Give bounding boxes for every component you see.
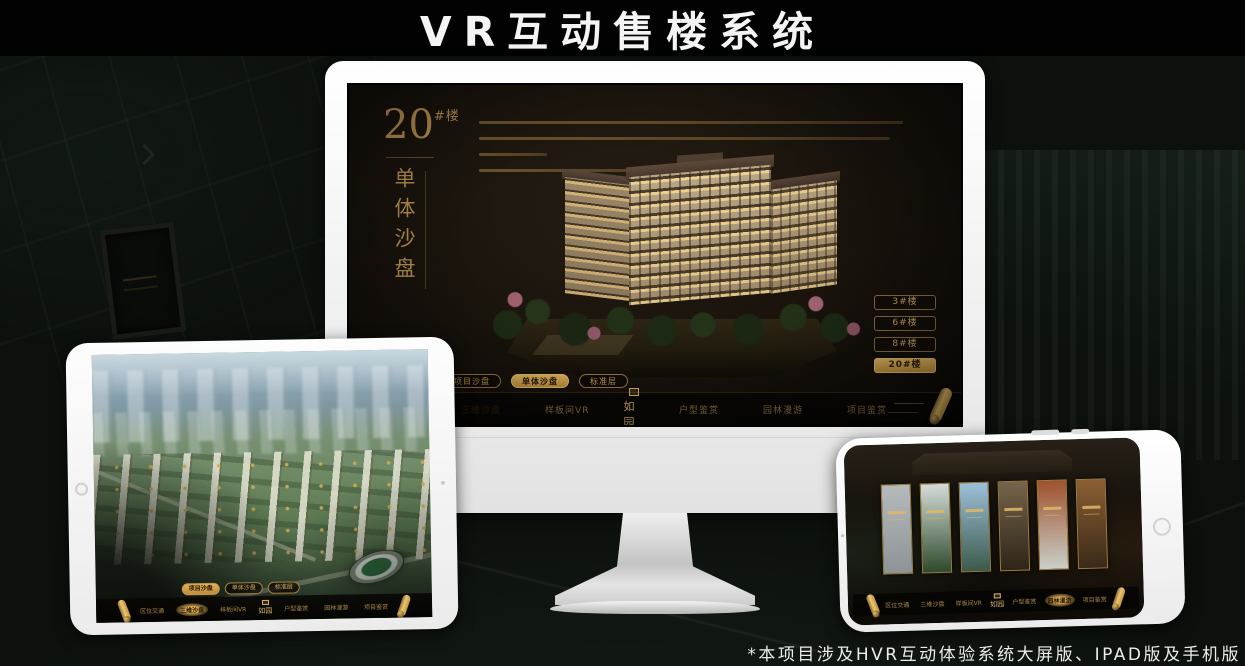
phone-nav-location[interactable]: 区位交通: [882, 597, 912, 611]
gallery-panel-sketch[interactable]: [880, 484, 913, 575]
phone-navbar: 区位交通 三维沙盘 样板间VR 如园 户型鉴赏 园林漫游 项目鉴赏: [853, 586, 1140, 616]
bottom-footnote: *本项目涉及HVR互动体验系统大屏版、IPAD版及手机版: [747, 640, 1241, 665]
scroll-panel-gallery: [845, 477, 1143, 575]
tower-button-3[interactable]: 3#楼: [874, 295, 936, 310]
sandbox-subtabs: 项目沙盘 单体沙盘 标准层: [443, 374, 628, 388]
heading-vertical-rule: [425, 171, 426, 289]
tower-button-20[interactable]: 20#楼: [874, 358, 936, 373]
brand-logo: 如园: [623, 388, 645, 425]
building-heading: 20#楼: [383, 105, 460, 145]
nav-item-model-room-vr[interactable]: 样板间VR: [535, 399, 599, 420]
stage: VR互动售楼系统 20#楼 单体沙盘: [0, 0, 1245, 666]
faint-picture-frame: [100, 222, 187, 340]
phone-camera-dot: [841, 534, 844, 537]
tablet-nav-model-room-vr[interactable]: 样板间VR: [216, 602, 251, 616]
subtab-standard-floor[interactable]: 标准层: [579, 374, 628, 388]
scroll-handle-icon[interactable]: [116, 599, 131, 622]
logo-seal-icon: [262, 600, 269, 605]
scroll-handle-icon[interactable]: [928, 386, 954, 424]
tablet-nav-location[interactable]: 区位交通: [136, 603, 168, 617]
scroll-trail-lines: [887, 403, 924, 413]
tablet-nav-garden-tour[interactable]: 园林漫游: [320, 600, 352, 614]
tower-button-6[interactable]: 6#楼: [874, 316, 936, 331]
page-title-bar: VR互动售楼系统: [0, 0, 1245, 56]
tablet-nav-floorplans[interactable]: 户型鉴赏: [280, 601, 312, 615]
phone-nav-model-room-vr[interactable]: 样板间VR: [952, 595, 985, 609]
gallery-panel-sky-tower[interactable]: [958, 482, 991, 573]
phone-screen: 区位交通 三维沙盘 样板间VR 如园 户型鉴赏 园林漫游 项目鉴赏: [844, 437, 1145, 625]
tablet-screen: 项目沙盘 单体沙盘 标准层 区位交通 三维沙盘 样板间VR 如园 户型鉴赏 园林…: [92, 349, 433, 623]
scroll-handle-icon[interactable]: [397, 594, 412, 617]
gallery-panel-facade[interactable]: [997, 481, 1030, 572]
building-3d-model[interactable]: [499, 163, 845, 377]
tower-button-8[interactable]: 8#楼: [874, 337, 936, 352]
phone-volume-button: [1031, 430, 1059, 436]
page-title: VR互动售楼系统: [420, 0, 825, 58]
nav-item-floorplans[interactable]: 户型鉴赏: [669, 399, 729, 420]
scroll-handle-icon[interactable]: [1112, 586, 1127, 609]
gallery-panel-autumn[interactable]: [1036, 479, 1069, 570]
tablet-subtab-project-sandbox[interactable]: 项目沙盘: [182, 583, 220, 596]
interior-pergola-silhouette: [912, 449, 1073, 475]
logo-seal-icon: [629, 388, 639, 396]
tablet-subtab-single-sandbox[interactable]: 单体沙盘: [225, 582, 263, 595]
nav-item-project-gallery[interactable]: 项目鉴赏: [837, 399, 897, 420]
subtab-single-sandbox[interactable]: 单体沙盘: [511, 374, 569, 388]
tablet-device: 项目沙盘 单体沙盘 标准层 区位交通 三维沙盘 样板间VR 如园 户型鉴赏 园林…: [65, 337, 458, 636]
nav-item-garden-tour[interactable]: 园林漫游: [753, 399, 813, 420]
tablet-home-button[interactable]: [75, 483, 88, 496]
faint-building-silhouette: [980, 150, 1245, 460]
tablet-nav-3d-sandbox[interactable]: 三维沙盘: [176, 602, 208, 616]
monitor-base: [550, 601, 760, 614]
tablet-nav-project-gallery[interactable]: 项目鉴赏: [360, 599, 392, 613]
brand-logo: 如园: [990, 593, 1004, 609]
phone-device: 区位交通 三维沙盘 样板间VR 如园 户型鉴赏 园林漫游 项目鉴赏: [835, 429, 1185, 633]
heading-rule: [386, 157, 434, 158]
phone-nav-project-gallery[interactable]: 项目鉴赏: [1080, 592, 1110, 606]
gallery-panel-courtyard[interactable]: [919, 483, 952, 574]
phone-nav-floorplans[interactable]: 户型鉴赏: [1009, 594, 1039, 608]
tablet-subtabs: 项目沙盘 单体沙盘 标准层: [182, 581, 300, 595]
phone-nav-garden-tour[interactable]: 园林漫游: [1044, 593, 1074, 607]
tablet-camera-dot: [441, 481, 445, 485]
tablet-subtab-standard-floor[interactable]: 标准层: [268, 581, 300, 594]
monitor-stand: [555, 513, 755, 605]
phone-side-button: [1071, 429, 1089, 435]
gallery-panel-interior[interactable]: [1075, 478, 1108, 569]
scroll-handle-icon[interactable]: [865, 593, 881, 616]
brand-logo: 如园: [258, 600, 272, 616]
logo-seal-icon: [993, 593, 1000, 598]
model-building: [565, 163, 847, 313]
nav-item-3d-sandbox[interactable]: 三维沙盘: [451, 399, 511, 420]
phone-nav-3d-sandbox[interactable]: 三维沙盘: [917, 596, 947, 610]
tower-selector: 3#楼 6#楼 8#楼 20#楼: [874, 295, 936, 373]
heading-subtitle: 单体沙盘: [389, 167, 419, 287]
